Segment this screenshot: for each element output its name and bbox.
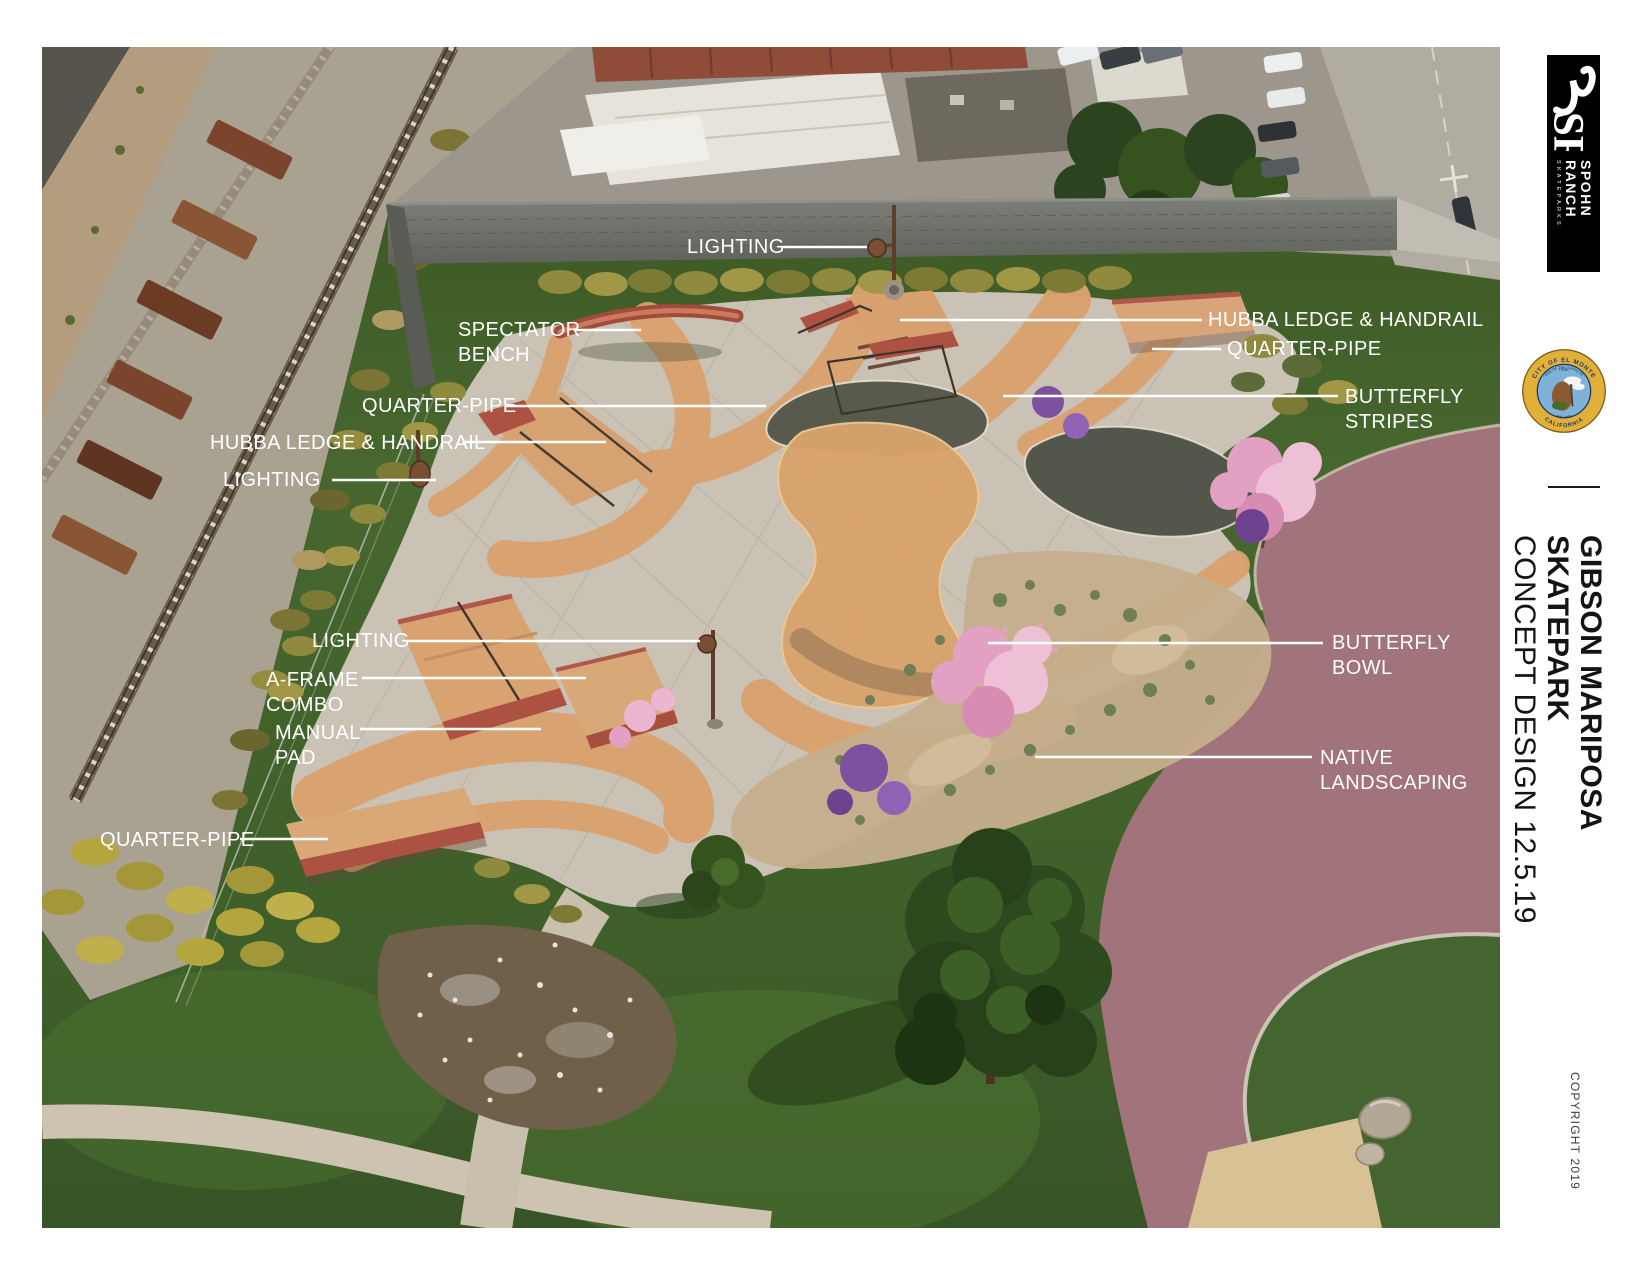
copyright-note: COPYRIGHT 2019 [1568, 1072, 1582, 1192]
sheet-title-block: GIBSON MARIPOSA SKATEPARK CONCEPT DESIGN… [1508, 535, 1607, 1015]
logo-name-line2: RANCH [1563, 160, 1578, 228]
seal-trail-text: TRAIL [1559, 367, 1571, 372]
city-seal-icon: CITY OF EL MONTE CALIFORNIA END OF THE S… [1521, 348, 1607, 434]
sidebar-divider [1548, 486, 1600, 488]
logo-name-line1: SPOHN [1578, 160, 1593, 228]
logo-tagline: SKATEPARKS [1554, 160, 1560, 228]
sheet-title: GIBSON MARIPOSA SKATEPARK [1541, 535, 1607, 1015]
spohn-ranch-monogram-icon: SR [1551, 63, 1597, 151]
rendering-scene [42, 47, 1500, 1228]
sheet-subtitle: CONCEPT DESIGN 12.5.19 [1508, 535, 1541, 1015]
spohn-ranch-logo: SR SPOHN RANCH SKATEPARKS [1547, 55, 1600, 272]
el-monte-city-seal: CITY OF EL MONTE CALIFORNIA END OF THE S… [1521, 348, 1607, 434]
skatepark-rendering: LIGHTING SPECTATOR BENCH HUBBA LEDGE & H… [42, 47, 1500, 1228]
monogram-letters: SR [1551, 112, 1592, 151]
